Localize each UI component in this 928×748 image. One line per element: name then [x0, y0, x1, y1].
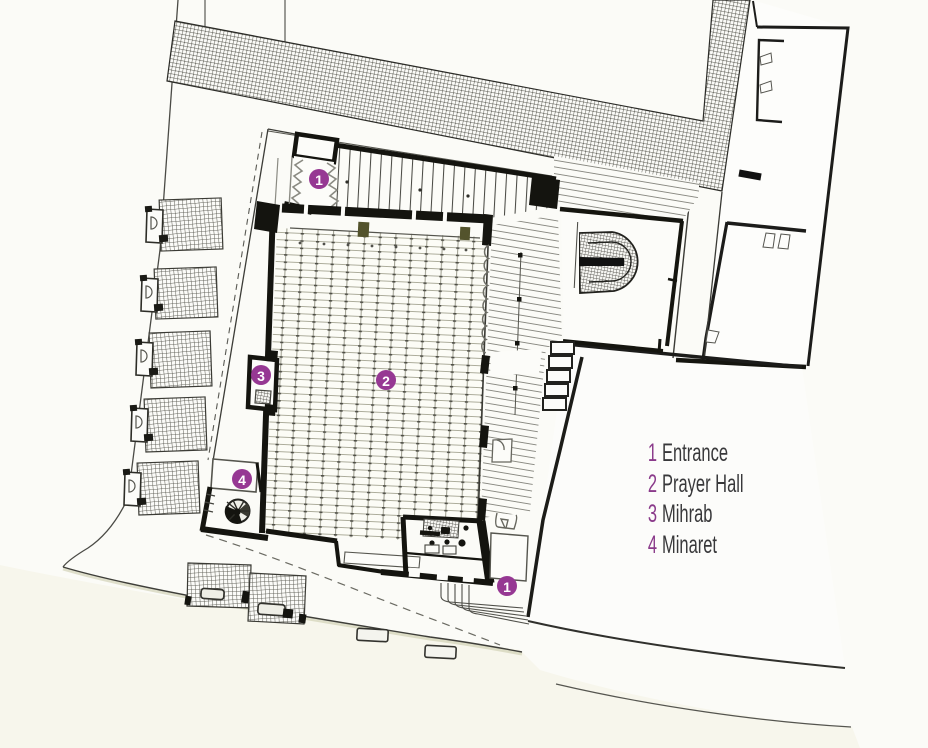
svg-text:2: 2 [648, 471, 657, 498]
svg-text:1: 1 [648, 440, 657, 467]
svg-text:Mihrab: Mihrab [662, 501, 712, 528]
svg-text:3: 3 [257, 368, 265, 384]
svg-text:4: 4 [238, 472, 246, 488]
svg-text:3: 3 [648, 501, 657, 528]
svg-text:1: 1 [503, 579, 511, 595]
svg-text:1: 1 [315, 172, 323, 188]
svg-text:Entrance: Entrance [662, 440, 728, 467]
svg-text:Prayer Hall: Prayer Hall [662, 471, 744, 498]
svg-text:Minaret: Minaret [662, 532, 717, 559]
svg-text:4: 4 [648, 532, 657, 559]
svg-text:2: 2 [382, 373, 390, 389]
